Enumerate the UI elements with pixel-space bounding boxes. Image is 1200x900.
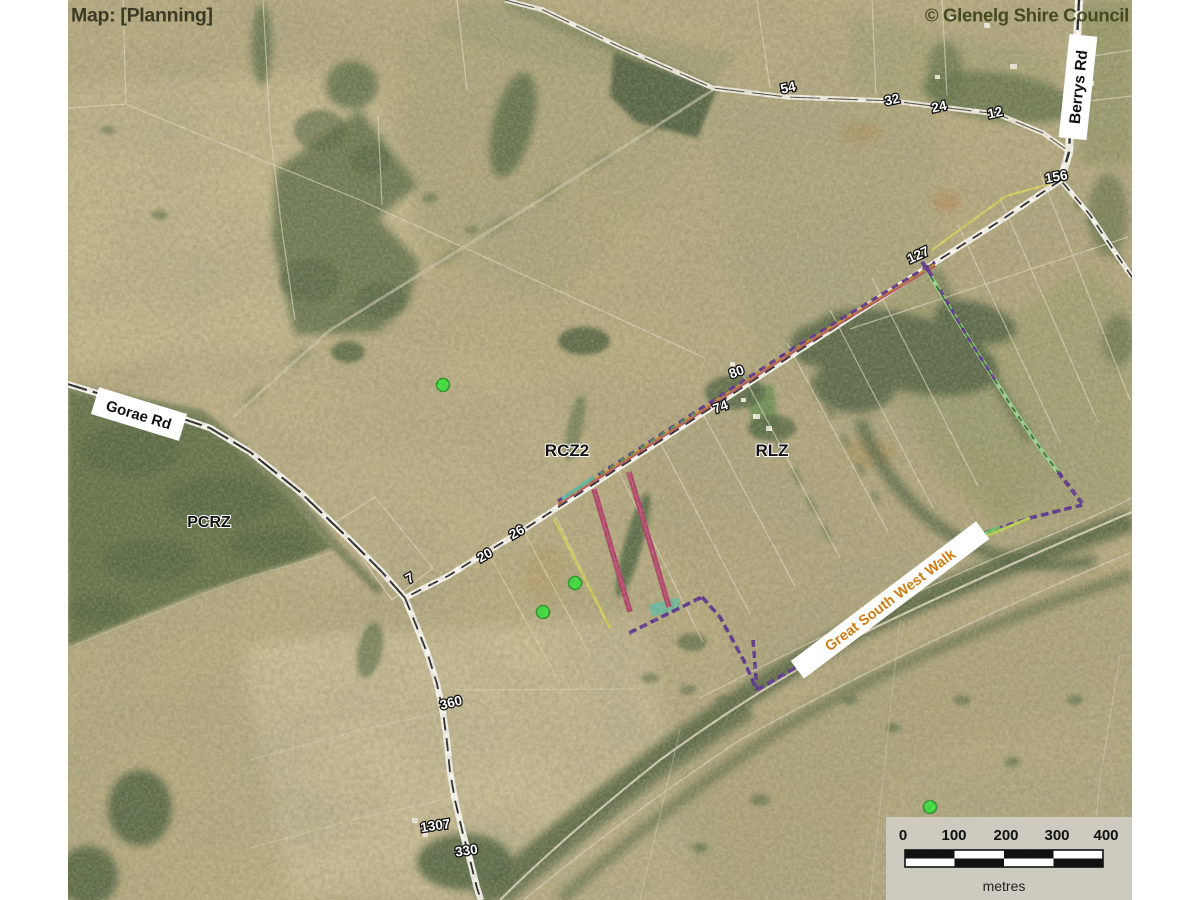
svg-text:100: 100 [941,827,966,844]
svg-text:Map: [Planning]: Map: [Planning] [71,5,213,27]
svg-text:32: 32 [883,91,901,109]
svg-text:metres: metres [983,878,1026,894]
svg-text:0: 0 [899,827,907,844]
svg-text:RCZ2: RCZ2 [545,441,589,460]
svg-text:© Glenelg Shire Council: © Glenelg Shire Council [925,5,1129,26]
svg-text:400: 400 [1093,827,1118,844]
svg-text:300: 300 [1044,827,1069,844]
svg-text:RLZ: RLZ [755,441,788,460]
svg-text:200: 200 [993,827,1018,844]
svg-text:12: 12 [986,104,1004,122]
svg-text:PCRZ: PCRZ [187,514,231,531]
svg-text:330: 330 [454,842,478,860]
